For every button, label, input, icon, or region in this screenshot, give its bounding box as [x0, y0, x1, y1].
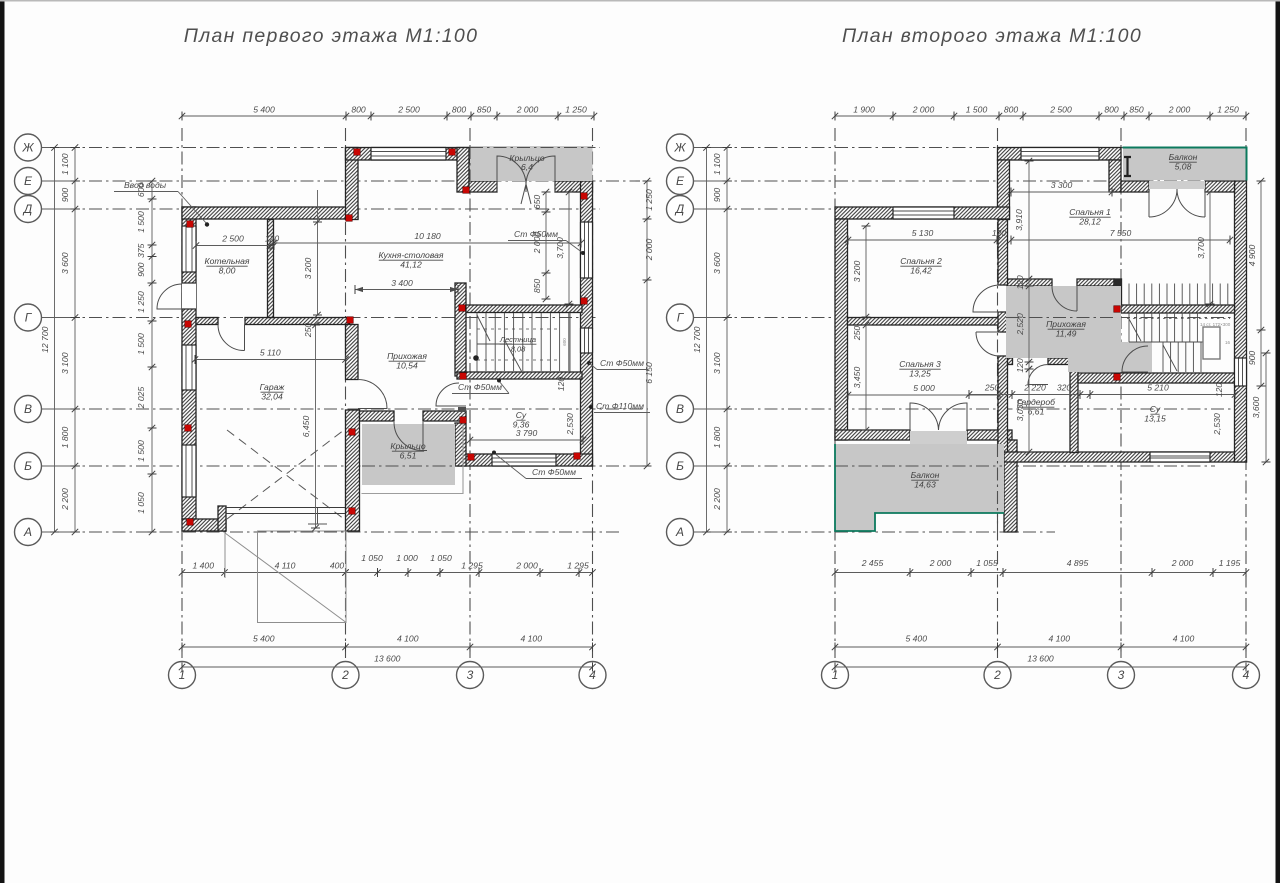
svg-text:10,54: 10,54 — [396, 361, 418, 371]
svg-text:3 600: 3 600 — [712, 252, 722, 274]
svg-text:2 500: 2 500 — [397, 105, 420, 115]
svg-text:5,08: 5,08 — [1175, 162, 1192, 172]
svg-text:Лестница: Лестница — [499, 335, 536, 344]
svg-text:400: 400 — [330, 561, 345, 571]
svg-text:Е: Е — [24, 174, 33, 188]
svg-text:Спальня 3: Спальня 3 — [899, 359, 941, 369]
svg-text:320: 320 — [1057, 383, 1072, 393]
svg-text:3 100: 3 100 — [712, 352, 722, 374]
svg-text:850: 850 — [532, 279, 542, 294]
svg-text:2: 2 — [993, 668, 1001, 682]
svg-text:1 050: 1 050 — [430, 553, 452, 563]
svg-text:Крыльцо: Крыльцо — [390, 441, 425, 451]
svg-text:Ж: Ж — [21, 141, 34, 155]
svg-text:8,08: 8,08 — [511, 345, 526, 354]
svg-text:1 500: 1 500 — [136, 333, 146, 355]
svg-text:4 100: 4 100 — [1048, 634, 1070, 644]
svg-text:3 300: 3 300 — [1051, 180, 1073, 190]
svg-text:Су: Су — [516, 410, 527, 420]
svg-text:2 000: 2 000 — [1168, 105, 1191, 115]
svg-text:2,530: 2,530 — [1212, 413, 1222, 436]
svg-text:2,520: 2,520 — [1015, 313, 1025, 336]
svg-text:2,530: 2,530 — [565, 413, 575, 436]
svg-text:1 295: 1 295 — [461, 561, 483, 571]
svg-text:13,15: 13,15 — [1144, 414, 1166, 424]
svg-text:120: 120 — [1214, 383, 1224, 398]
svg-text:3,030: 3,030 — [1015, 400, 1025, 422]
svg-text:1 100: 1 100 — [712, 153, 722, 175]
svg-text:5 130: 5 130 — [912, 228, 934, 238]
svg-text:1 900: 1 900 — [853, 105, 875, 115]
svg-text:2 200: 2 200 — [60, 488, 70, 511]
svg-text:3 100: 3 100 — [60, 352, 70, 374]
svg-text:250: 250 — [984, 383, 1000, 393]
svg-text:1 295: 1 295 — [567, 561, 589, 571]
svg-text:250: 250 — [303, 323, 313, 339]
svg-text:2 000: 2 000 — [516, 105, 539, 115]
svg-text:5 000: 5 000 — [913, 383, 935, 393]
svg-text:8,00: 8,00 — [219, 266, 236, 276]
svg-text:850: 850 — [477, 105, 492, 115]
svg-text:Прихожая: Прихожая — [1046, 319, 1086, 329]
svg-text:2 000: 2 000 — [912, 105, 935, 115]
svg-text:Гараж: Гараж — [260, 382, 286, 392]
svg-text:Б: Б — [24, 459, 32, 473]
svg-text:6,450: 6,450 — [301, 416, 311, 438]
svg-text:2 000: 2 000 — [1171, 558, 1194, 568]
svg-text:1 055: 1 055 — [976, 558, 998, 568]
svg-text:Ст Ф50мм: Ст Ф50мм — [458, 382, 502, 392]
svg-text:2 500: 2 500 — [1049, 105, 1072, 115]
svg-text:120: 120 — [1015, 275, 1025, 290]
svg-text:7 550: 7 550 — [1110, 228, 1132, 238]
svg-text:900: 900 — [712, 188, 722, 203]
svg-text:2 455: 2 455 — [861, 558, 884, 568]
svg-text:3,700: 3,700 — [1196, 237, 1206, 259]
svg-text:6,51: 6,51 — [400, 451, 417, 461]
svg-text:4 100: 4 100 — [1173, 634, 1195, 644]
svg-text:А: А — [675, 525, 684, 539]
svg-text:4 110: 4 110 — [275, 561, 296, 571]
svg-text:Ввод воды: Ввод воды — [124, 180, 167, 190]
svg-text:4 100: 4 100 — [520, 634, 542, 644]
svg-text:12 700: 12 700 — [40, 326, 50, 353]
svg-text:1 800: 1 800 — [60, 427, 70, 449]
svg-text:Ст Ф50мм: Ст Ф50мм — [600, 358, 644, 368]
svg-text:2 200: 2 200 — [712, 488, 722, 511]
svg-text:6,4: 6,4 — [521, 162, 533, 172]
svg-text:10 180: 10 180 — [414, 231, 441, 241]
svg-text:Спальня 1: Спальня 1 — [1069, 207, 1111, 217]
svg-text:850: 850 — [1129, 105, 1144, 115]
svg-text:5 210: 5 210 — [1147, 383, 1169, 393]
svg-text:13,25: 13,25 — [909, 369, 931, 379]
svg-text:Б: Б — [676, 459, 684, 473]
svg-text:1 250: 1 250 — [644, 189, 654, 211]
svg-text:3,600: 3,600 — [1251, 397, 1261, 419]
svg-text:13 600: 13 600 — [1027, 654, 1054, 664]
svg-text:В: В — [24, 402, 32, 416]
svg-text:1 050: 1 050 — [136, 492, 146, 514]
svg-text:1 400: 1 400 — [192, 561, 214, 571]
svg-text:Су: Су — [1150, 404, 1161, 414]
svg-text:4 100: 4 100 — [397, 634, 419, 644]
svg-text:1 000: 1 000 — [396, 553, 418, 563]
svg-text:13 600: 13 600 — [374, 654, 401, 664]
svg-text:Балкон: Балкон — [1169, 152, 1198, 162]
svg-text:Д: Д — [22, 202, 33, 216]
svg-text:800: 800 — [452, 105, 467, 115]
svg-text:14,63: 14,63 — [914, 480, 936, 490]
svg-text:1 250: 1 250 — [1217, 105, 1239, 115]
svg-text:800: 800 — [351, 105, 366, 115]
svg-text:Ст Ф50мм: Ст Ф50мм — [514, 229, 558, 239]
svg-text:1 250: 1 250 — [565, 105, 587, 115]
svg-text:3 790: 3 790 — [516, 428, 538, 438]
svg-text:Балкон: Балкон — [911, 470, 940, 480]
svg-text:900: 900 — [1247, 351, 1257, 366]
svg-text:650: 650 — [532, 195, 542, 210]
svg-text:6 150: 6 150 — [644, 362, 654, 384]
svg-text:28,12: 28,12 — [1078, 217, 1101, 227]
svg-text:1 500: 1 500 — [966, 105, 988, 115]
svg-text:2 220: 2 220 — [1023, 383, 1046, 393]
svg-text:600: 600 — [562, 338, 567, 346]
svg-text:Спальня 2: Спальня 2 — [900, 256, 942, 266]
svg-text:2 000: 2 000 — [644, 239, 654, 262]
svg-text:3: 3 — [1118, 668, 1125, 682]
svg-text:Ж: Ж — [673, 141, 686, 155]
svg-text:2 025: 2 025 — [136, 387, 146, 410]
svg-text:Котельная: Котельная — [205, 256, 250, 266]
svg-text:16,42: 16,42 — [910, 266, 932, 276]
svg-text:4 900: 4 900 — [1247, 245, 1257, 267]
svg-text:800: 800 — [1004, 105, 1019, 115]
svg-text:3,910: 3,910 — [1014, 209, 1024, 231]
svg-text:3: 3 — [467, 668, 474, 682]
svg-text:1 250: 1 250 — [136, 291, 146, 313]
svg-text:41,12: 41,12 — [400, 260, 422, 270]
svg-text:3,450: 3,450 — [852, 367, 862, 389]
svg-text:1 050: 1 050 — [361, 553, 383, 563]
svg-text:А: А — [23, 525, 32, 539]
svg-text:Кухня-столовая: Кухня-столовая — [379, 250, 444, 260]
svg-text:6,61: 6,61 — [1028, 407, 1045, 417]
svg-text:В: В — [676, 402, 684, 416]
svg-text:120: 120 — [1015, 358, 1025, 373]
svg-text:1 500: 1 500 — [136, 211, 146, 233]
svg-text:Е: Е — [676, 174, 685, 188]
svg-text:2: 2 — [341, 668, 349, 682]
svg-text:32,04: 32,04 — [261, 392, 283, 402]
svg-text:1 195: 1 195 — [1219, 558, 1241, 568]
svg-text:Ст Ф110мм: Ст Ф110мм — [596, 401, 644, 411]
svg-text:5 400: 5 400 — [905, 634, 927, 644]
svg-text:800: 800 — [1104, 105, 1119, 115]
svg-text:Д: Д — [674, 202, 685, 216]
svg-text:1 800: 1 800 — [712, 427, 722, 449]
svg-text:3 200: 3 200 — [303, 258, 313, 280]
svg-text:2 500: 2 500 — [221, 234, 244, 244]
svg-text:1 100: 1 100 — [60, 153, 70, 175]
svg-text:11,49: 11,49 — [1056, 329, 1077, 339]
svg-text:375: 375 — [136, 243, 146, 258]
svg-text:3 400: 3 400 — [391, 278, 413, 288]
svg-text:120: 120 — [556, 377, 566, 392]
svg-text:16: 16 — [1225, 340, 1231, 345]
svg-text:5 400: 5 400 — [253, 105, 275, 115]
svg-text:2 000: 2 000 — [929, 558, 952, 568]
svg-text:120: 120 — [265, 234, 280, 244]
svg-text:2 000: 2 000 — [515, 561, 538, 571]
svg-text:1 500: 1 500 — [136, 440, 146, 462]
svg-text:Ст Ф50мм: Ст Ф50мм — [532, 467, 576, 477]
svg-text:План первого этажа М1:100: План первого этажа М1:100 — [184, 25, 478, 47]
svg-text:250: 250 — [852, 326, 862, 342]
svg-text:4 895: 4 895 — [1067, 558, 1089, 568]
svg-text:Прихожая: Прихожая — [387, 351, 427, 361]
svg-text:900: 900 — [60, 188, 70, 203]
svg-text:5 110: 5 110 — [260, 348, 281, 358]
svg-text:120: 120 — [992, 228, 1007, 238]
svg-text:14 ст. 172×300: 14 ст. 172×300 — [1200, 322, 1231, 327]
svg-text:5 400: 5 400 — [253, 634, 275, 644]
svg-text:План второго этажа М1:100: План второго этажа М1:100 — [842, 25, 1142, 47]
svg-text:900: 900 — [136, 262, 146, 277]
svg-text:12 700: 12 700 — [692, 326, 702, 353]
svg-text:3 600: 3 600 — [60, 252, 70, 274]
svg-text:3 200: 3 200 — [852, 261, 862, 283]
